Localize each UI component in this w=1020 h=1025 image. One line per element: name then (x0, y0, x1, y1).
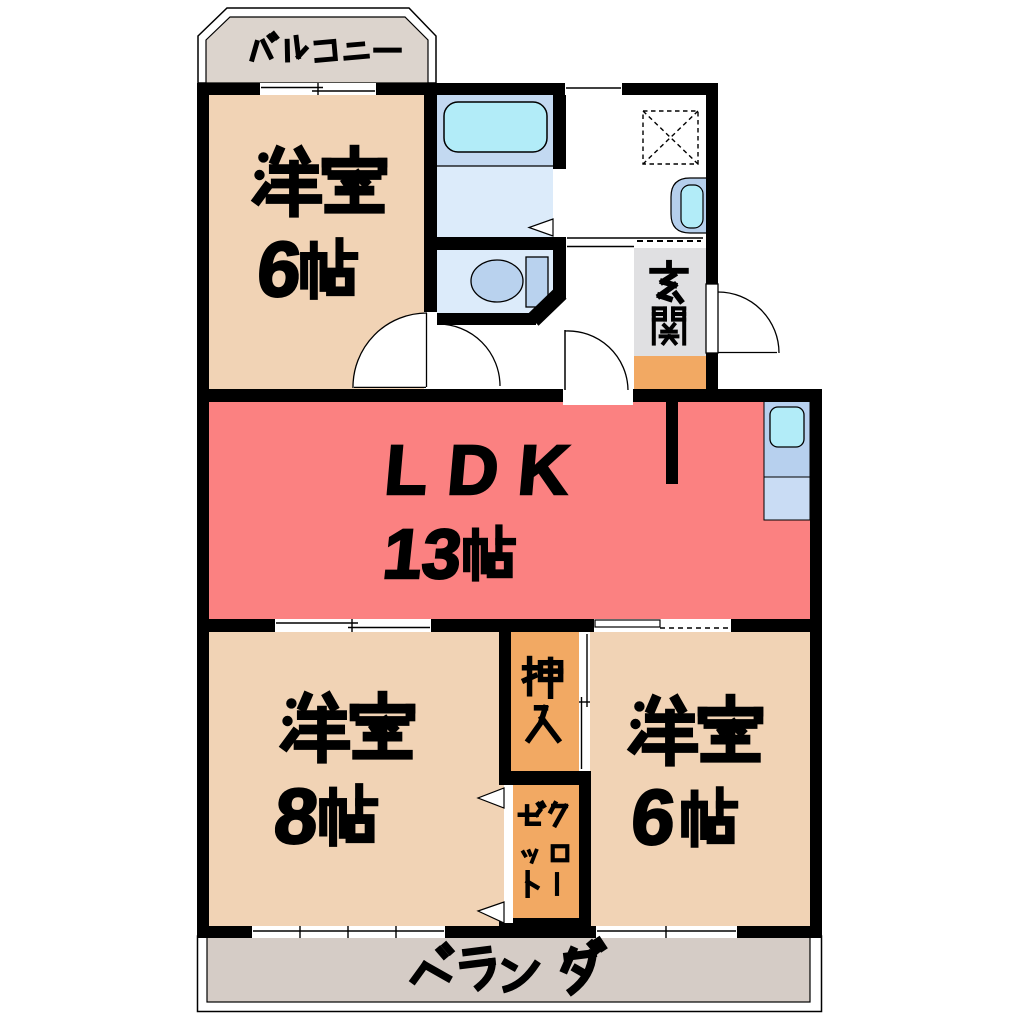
svg-text:13: 13 (379, 514, 465, 593)
svg-text:LDK: LDK (382, 431, 593, 509)
svg-text:6: 6 (254, 225, 305, 313)
svg-text:8: 8 (271, 772, 322, 860)
svg-text:6: 6 (628, 773, 679, 861)
